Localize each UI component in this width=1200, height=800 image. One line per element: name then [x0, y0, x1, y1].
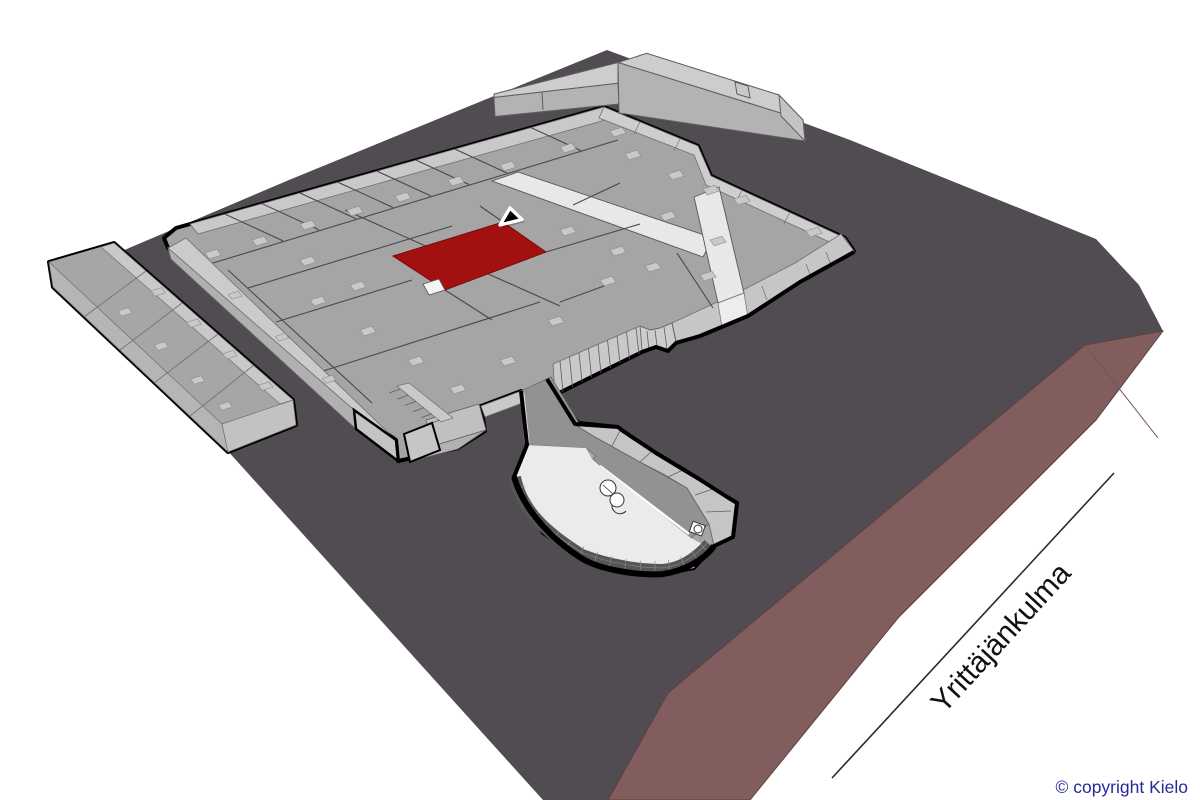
svg-text:© copyright Kielo: © copyright Kielo	[1055, 777, 1188, 797]
